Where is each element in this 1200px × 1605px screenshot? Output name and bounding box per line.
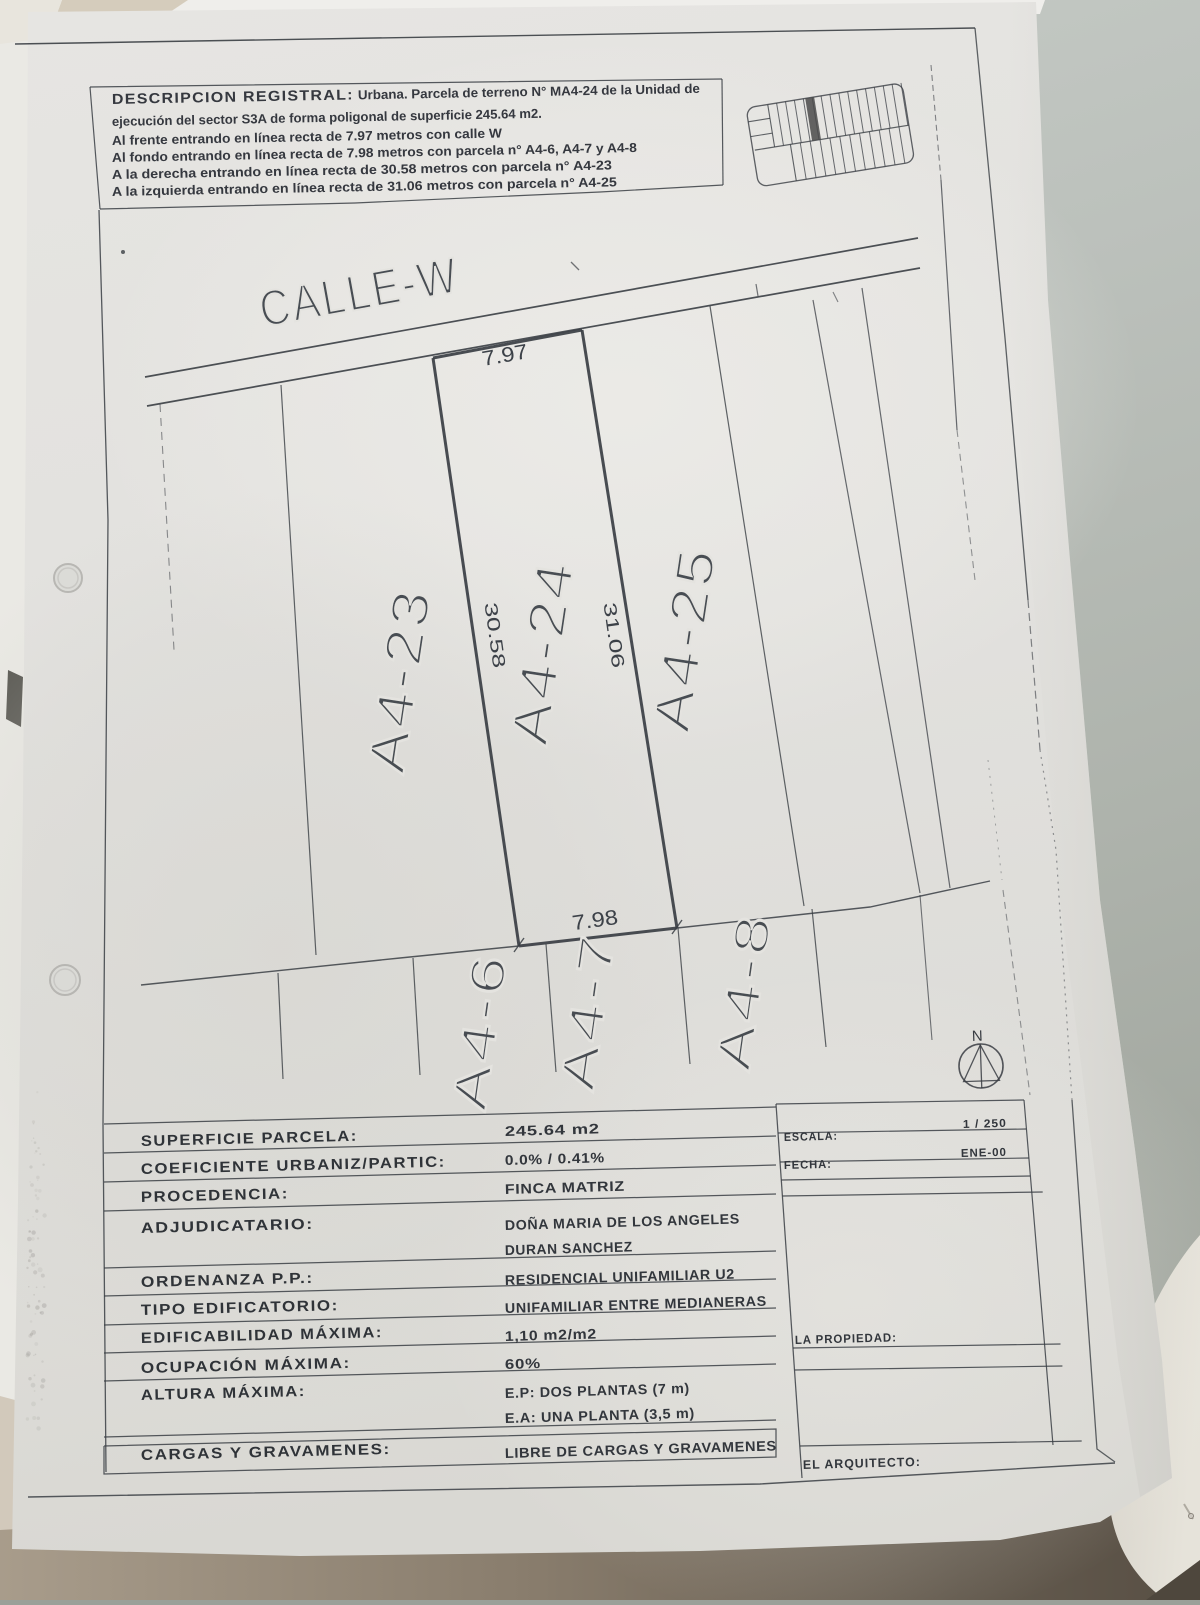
svg-text:PROCEDENCIA:: PROCEDENCIA: — [141, 1185, 289, 1206]
svg-text:ENE-00: ENE-00 — [961, 1147, 1007, 1160]
svg-text:N: N — [972, 1028, 983, 1045]
svg-text:ESCALA:: ESCALA: — [784, 1131, 838, 1144]
svg-text:60%: 60% — [505, 1355, 541, 1372]
svg-text:LA PROPIEDAD:: LA PROPIEDAD: — [795, 1330, 897, 1347]
svg-text:1,10 m2/m2: 1,10 m2/m2 — [505, 1325, 597, 1344]
svg-text:FECHA:: FECHA: — [784, 1159, 832, 1172]
svg-text:0.0% / 0.41%: 0.0% / 0.41% — [505, 1149, 605, 1168]
svg-text:FINCA MATRIZ: FINCA MATRIZ — [505, 1178, 625, 1197]
svg-text:245.64 m2: 245.64 m2 — [505, 1120, 600, 1139]
svg-text:1 / 250: 1 / 250 — [963, 1118, 1007, 1131]
